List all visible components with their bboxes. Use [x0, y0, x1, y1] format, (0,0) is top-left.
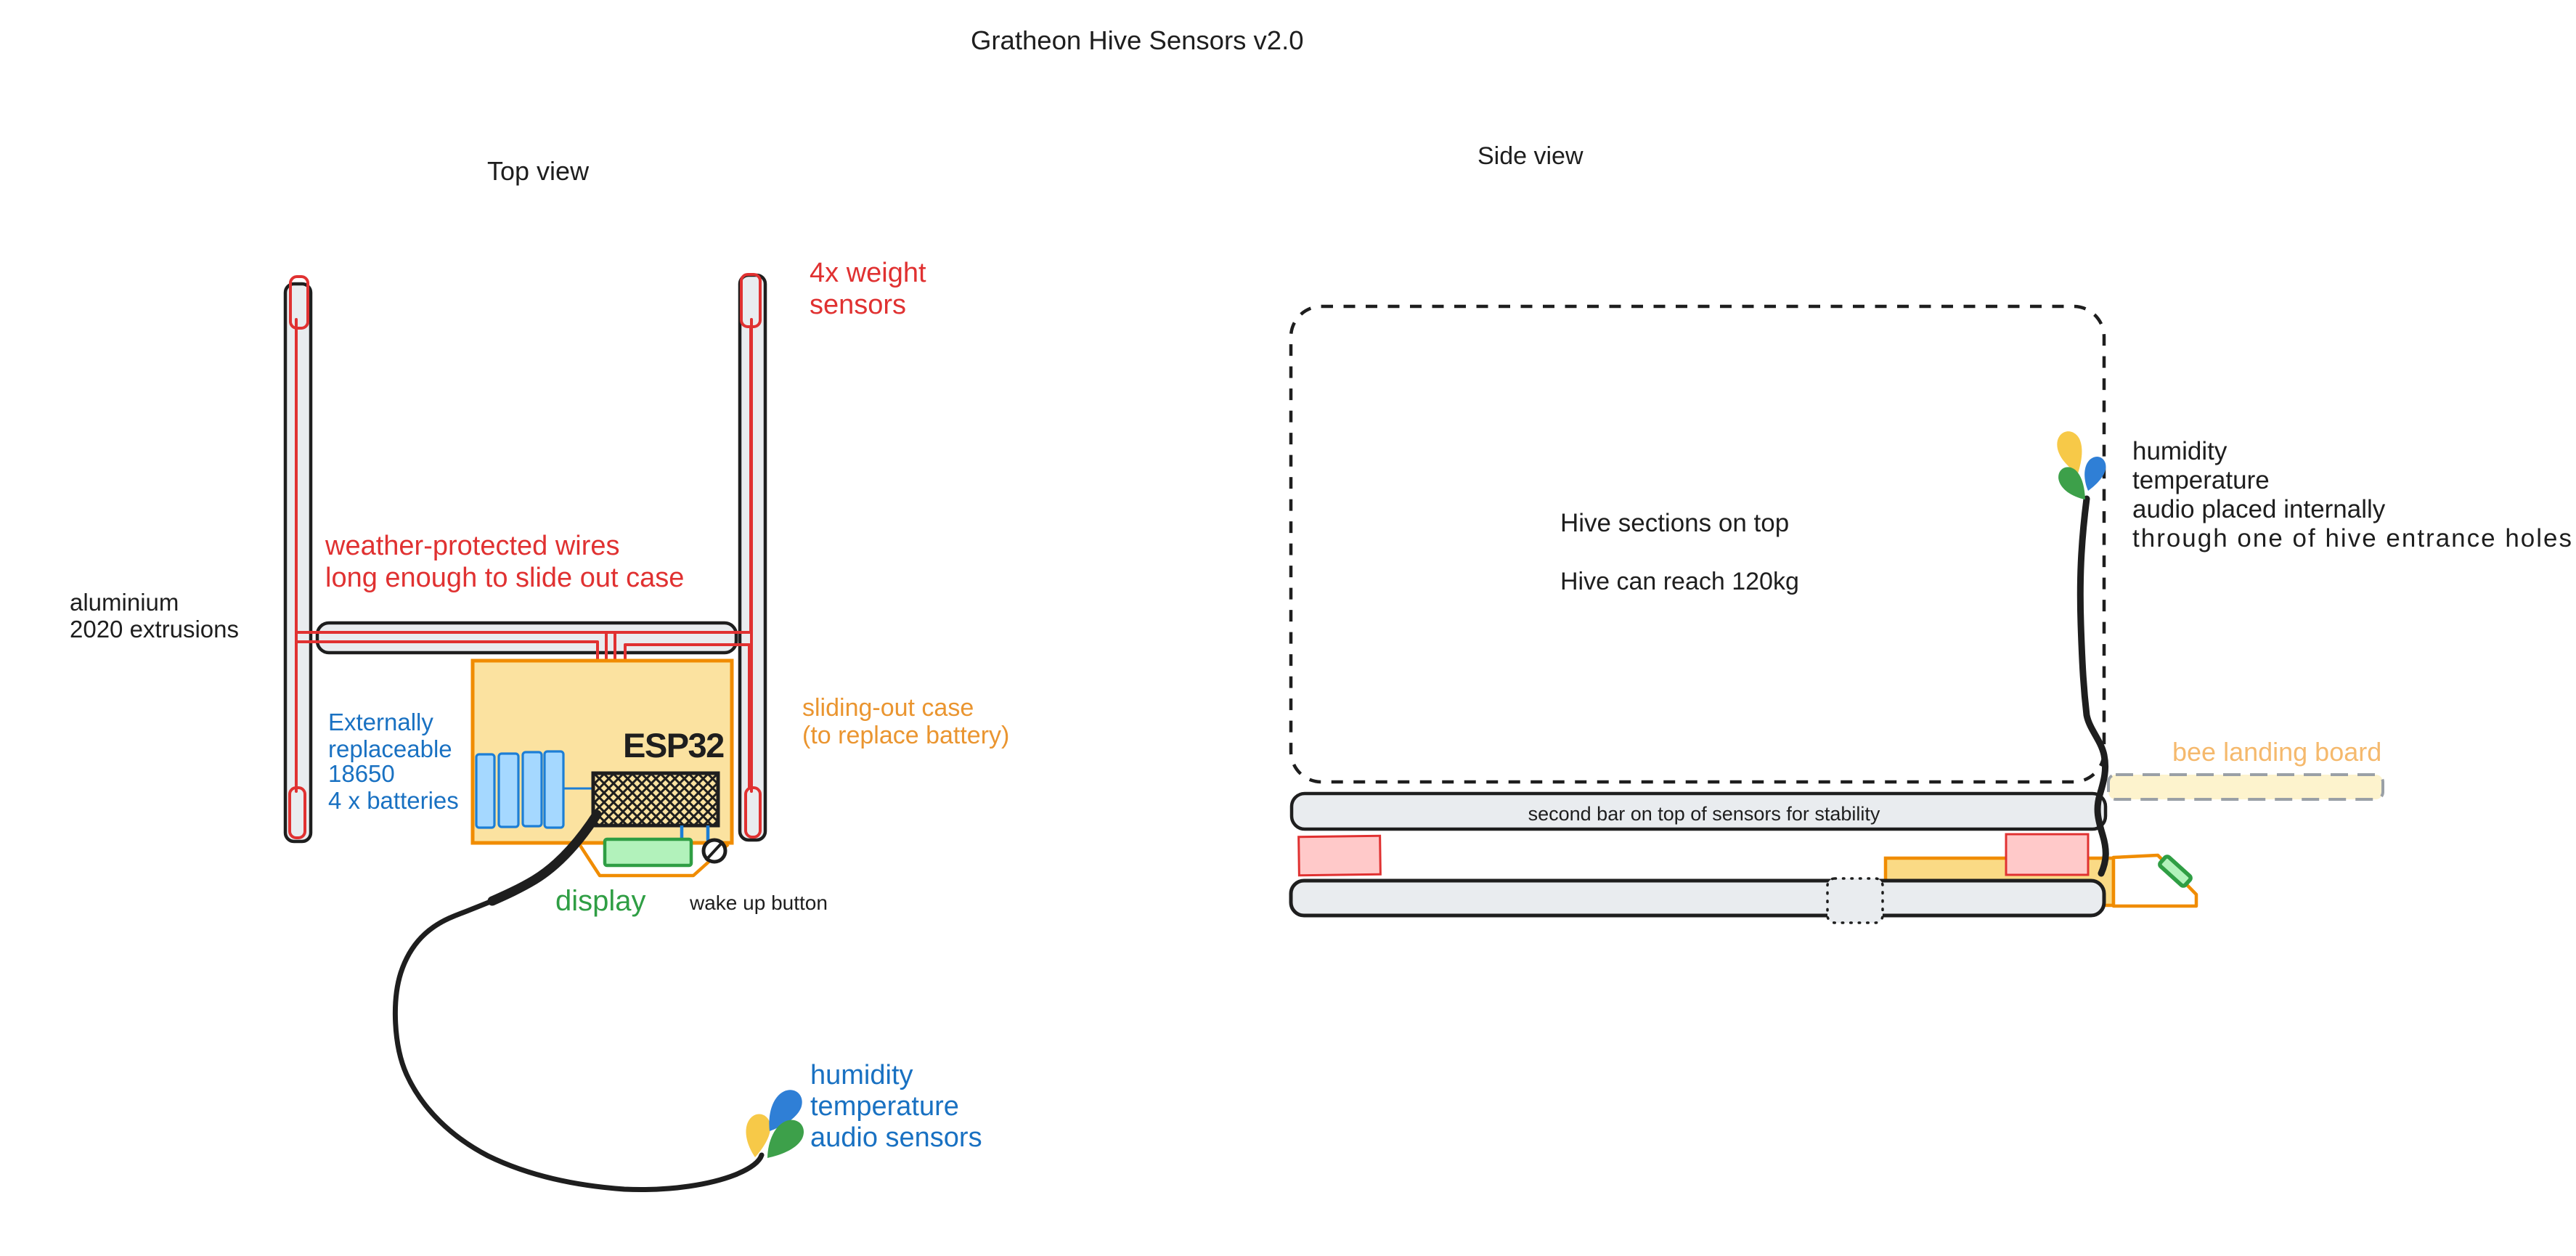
svg-text:humidity: humidity [2132, 437, 2227, 465]
svg-text:second bar on top of sensors f: second bar on top of sensors for stabili… [1528, 803, 1880, 825]
svg-text:weather-protected wires: weather-protected wires [325, 531, 620, 561]
svg-text:Top view: Top view [487, 156, 590, 186]
svg-text:through one of hive entrance h: through one of hive entrance holes [2132, 524, 2573, 552]
svg-text:Gratheon Hive Sensors v2.0: Gratheon Hive Sensors v2.0 [971, 25, 1304, 55]
svg-text:audio sensors: audio sensors [810, 1122, 982, 1153]
svg-text:temperature: temperature [810, 1091, 959, 1122]
svg-text:Externally: Externally [328, 709, 433, 735]
svg-text:bee landing board: bee landing board [2172, 737, 2381, 767]
svg-text:long enough to slide out case: long enough to slide out case [325, 563, 684, 593]
svg-text:Hive sections on top: Hive sections on top [1560, 509, 1789, 537]
svg-text:2020 extrusions: 2020 extrusions [70, 616, 239, 643]
svg-text:audio placed internally: audio placed internally [2132, 495, 2386, 523]
svg-text:aluminium: aluminium [70, 589, 179, 616]
svg-text:sensors: sensors [810, 290, 906, 320]
svg-text:Hive can reach 120kg: Hive can reach 120kg [1560, 568, 1799, 595]
svg-text:18650: 18650 [328, 760, 395, 787]
svg-text:temperature: temperature [2132, 466, 2270, 494]
svg-text:wake up button: wake up button [689, 892, 828, 914]
svg-text:Side view: Side view [1477, 142, 1583, 170]
svg-text:(to replace battery): (to replace battery) [802, 722, 1009, 749]
svg-text:display: display [555, 885, 646, 917]
svg-text:4 x batteries: 4 x batteries [328, 787, 459, 814]
svg-text:sliding-out case: sliding-out case [802, 694, 974, 722]
svg-text:4x weight: 4x weight [810, 258, 926, 288]
svg-text:replaceable: replaceable [328, 735, 452, 762]
svg-text:humidity: humidity [810, 1060, 913, 1090]
svg-text:ESP32: ESP32 [623, 726, 724, 764]
